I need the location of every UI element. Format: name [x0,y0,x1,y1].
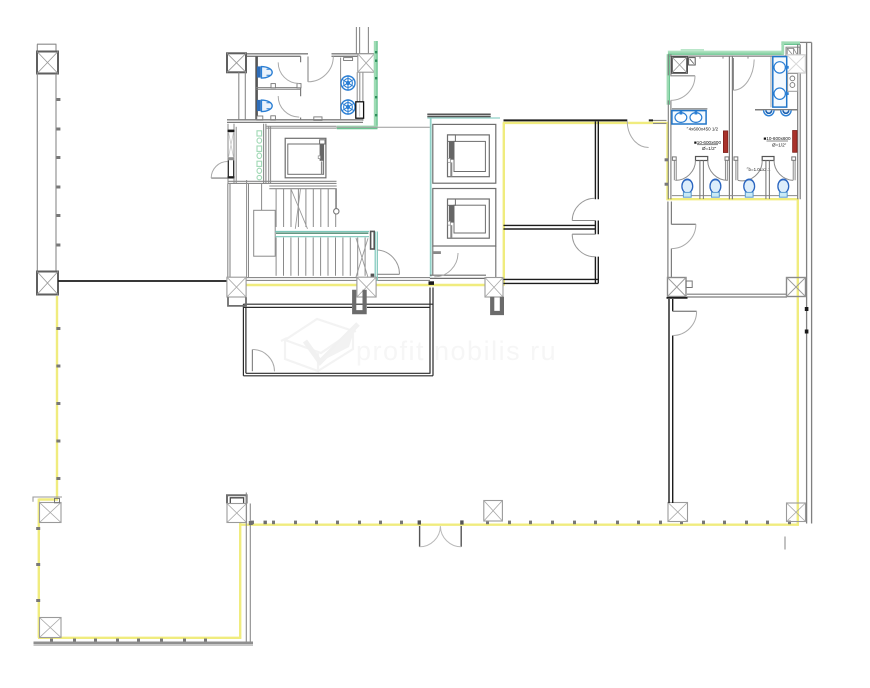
svg-text:profit nobilis ru: profit nobilis ru [356,336,557,366]
svg-text:Ø=1/2": Ø=1/2" [702,146,717,151]
svg-text:Ø=1/2": Ø=1/2" [772,142,787,147]
svg-text:■10-600x600: ■10-600x600 [694,140,721,145]
svg-text:■10-600x600: ■10-600x600 [764,136,791,141]
svg-text:⌜4x600x450 1/2: ⌜4x600x450 1/2 [687,127,719,132]
